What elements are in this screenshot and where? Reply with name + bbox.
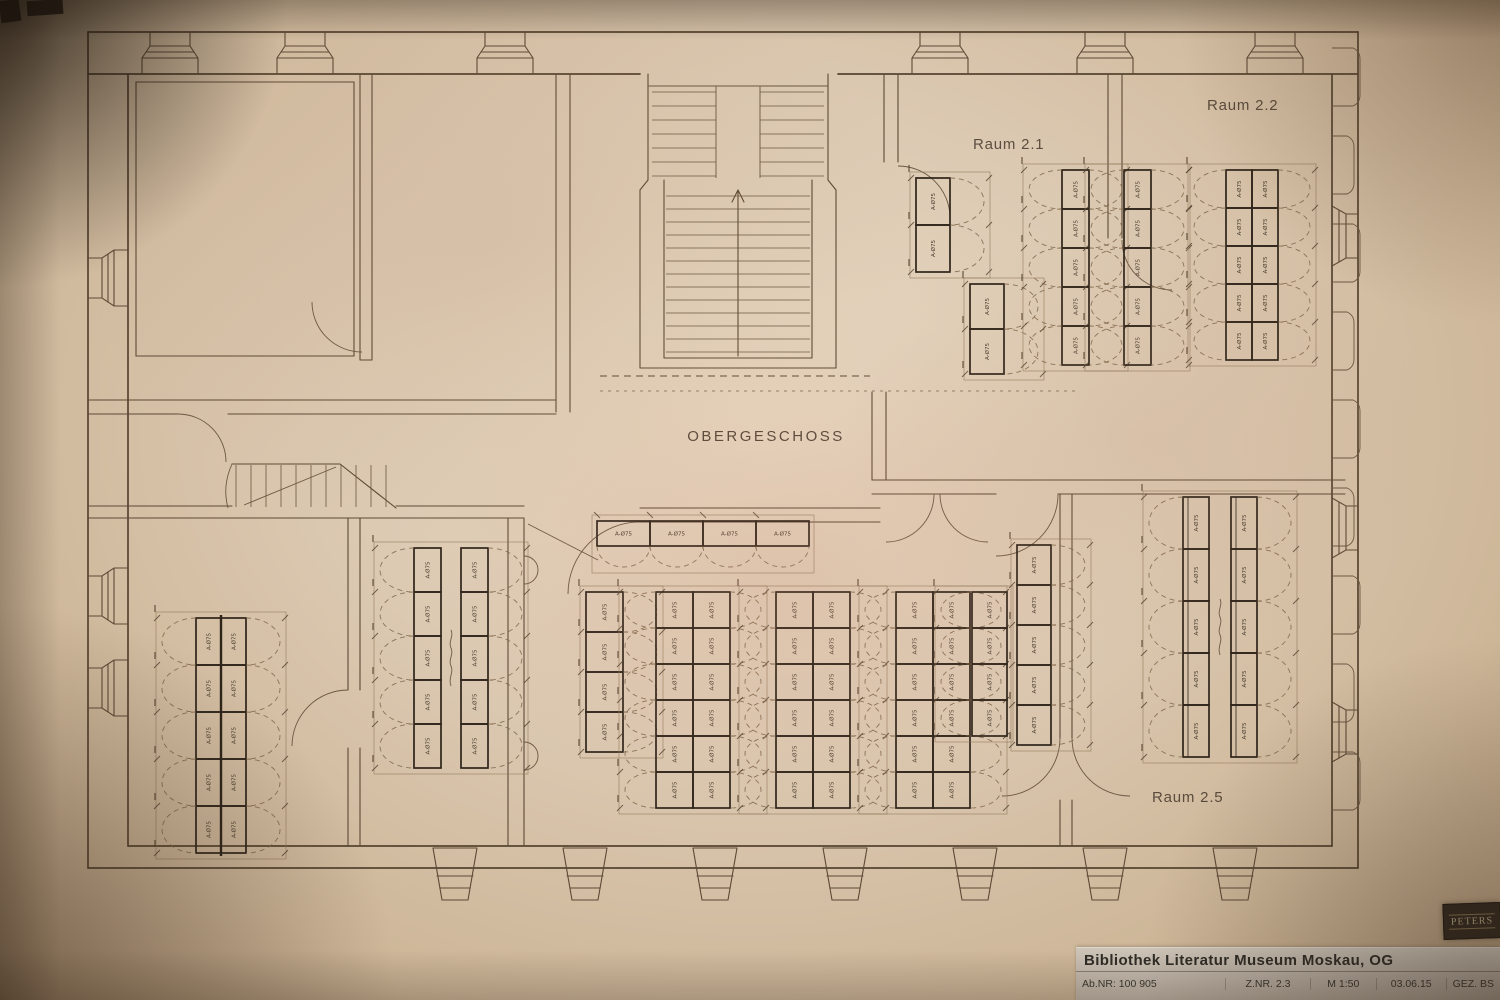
svg-text:A-Ø75: A-Ø75 xyxy=(1031,676,1038,693)
svg-text:A-Ø75: A-Ø75 xyxy=(709,601,716,618)
title-block-fields: Ab.NR: 100 905Z.NR. 2.3M 1:5003.06.15GEZ… xyxy=(1076,972,1500,996)
svg-text:A-Ø75: A-Ø75 xyxy=(721,531,738,538)
svg-text:A-Ø75: A-Ø75 xyxy=(949,601,956,618)
room-label-2-2: Raum 2.2 xyxy=(1207,97,1278,114)
svg-text:A-Ø75: A-Ø75 xyxy=(602,683,609,700)
svg-text:A-Ø75: A-Ø75 xyxy=(672,673,679,690)
svg-text:A-Ø75: A-Ø75 xyxy=(709,745,716,762)
svg-text:A-Ø75: A-Ø75 xyxy=(829,745,836,762)
svg-text:A-Ø75: A-Ø75 xyxy=(1031,556,1038,573)
outer-walls xyxy=(88,32,1358,868)
svg-text:A-Ø75: A-Ø75 xyxy=(1193,618,1200,635)
svg-text:A-Ø75: A-Ø75 xyxy=(1236,332,1243,349)
svg-text:A-Ø75: A-Ø75 xyxy=(1241,618,1248,635)
maker-stamp: PETERS xyxy=(1442,902,1500,940)
svg-text:A-Ø75: A-Ø75 xyxy=(206,774,213,791)
svg-text:A-Ø75: A-Ø75 xyxy=(472,737,479,754)
svg-text:A-Ø75: A-Ø75 xyxy=(425,561,432,578)
shelf-group-r21-c: A-Ø75A-Ø75A-Ø75A-Ø75A-Ø75 xyxy=(1021,157,1130,371)
shelf-group-hall-v6: A-Ø75A-Ø75A-Ø75A-Ø75A-Ø75 xyxy=(1009,532,1093,751)
title-block-field: Ab.NR: 100 905 xyxy=(1076,978,1225,990)
shelf-group-r21-a: A-Ø75A-Ø75 xyxy=(908,165,992,278)
svg-text:A-Ø75: A-Ø75 xyxy=(672,709,679,726)
svg-text:A-Ø75: A-Ø75 xyxy=(1241,514,1248,531)
room-label-2-5: Raum 2.5 xyxy=(1152,789,1223,806)
svg-text:A-Ø75: A-Ø75 xyxy=(949,781,956,798)
svg-text:A-Ø75: A-Ø75 xyxy=(1262,180,1269,197)
svg-text:A-Ø75: A-Ø75 xyxy=(1031,716,1038,733)
svg-text:A-Ø75: A-Ø75 xyxy=(829,709,836,726)
svg-text:A-Ø75: A-Ø75 xyxy=(1241,670,1248,687)
svg-text:A-Ø75: A-Ø75 xyxy=(1073,220,1080,237)
svg-text:A-Ø75: A-Ø75 xyxy=(1193,566,1200,583)
shelf-group-r22: A-Ø75A-Ø75A-Ø75A-Ø75A-Ø75A-Ø75A-Ø75A-Ø75… xyxy=(1186,157,1318,366)
svg-text:A-Ø75: A-Ø75 xyxy=(1262,256,1269,273)
svg-text:A-Ø75: A-Ø75 xyxy=(1236,256,1243,273)
svg-text:A-Ø75: A-Ø75 xyxy=(912,781,919,798)
svg-text:A-Ø75: A-Ø75 xyxy=(231,821,238,838)
floor-plan-drawing: A-Ø75A-Ø75A-Ø75A-Ø75A-Ø75A-Ø75A-Ø75A-Ø75… xyxy=(0,0,1500,1000)
svg-text:A-Ø75: A-Ø75 xyxy=(912,601,919,618)
svg-text:A-Ø75: A-Ø75 xyxy=(987,673,994,690)
svg-text:A-Ø75: A-Ø75 xyxy=(472,605,479,622)
svg-text:A-Ø75: A-Ø75 xyxy=(1236,218,1243,235)
svg-text:A-Ø75: A-Ø75 xyxy=(829,601,836,618)
svg-text:A-Ø75: A-Ø75 xyxy=(792,637,799,654)
svg-text:A-Ø75: A-Ø75 xyxy=(829,673,836,690)
svg-text:A-Ø75: A-Ø75 xyxy=(1073,298,1080,315)
title-block-field: M 1:50 xyxy=(1310,978,1376,990)
svg-text:A-Ø75: A-Ø75 xyxy=(615,531,632,538)
svg-text:A-Ø75: A-Ø75 xyxy=(987,601,994,618)
svg-text:A-Ø75: A-Ø75 xyxy=(206,633,213,650)
title-block: Bibliothek Literatur Museum Moskau, OG A… xyxy=(1076,947,1500,1000)
svg-text:A-Ø75: A-Ø75 xyxy=(912,673,919,690)
svg-text:A-Ø75: A-Ø75 xyxy=(1135,259,1142,276)
svg-text:A-Ø75: A-Ø75 xyxy=(792,709,799,726)
title-block-field: Z.NR. 2.3 xyxy=(1225,978,1309,990)
svg-text:A-Ø75: A-Ø75 xyxy=(672,601,679,618)
svg-text:A-Ø75: A-Ø75 xyxy=(1241,722,1248,739)
svg-text:A-Ø75: A-Ø75 xyxy=(1262,294,1269,311)
svg-text:A-Ø75: A-Ø75 xyxy=(1262,218,1269,235)
svg-text:A-Ø75: A-Ø75 xyxy=(672,637,679,654)
title-block-field: 03.06.15 xyxy=(1376,978,1446,990)
svg-text:A-Ø75: A-Ø75 xyxy=(709,637,716,654)
svg-text:A-Ø75: A-Ø75 xyxy=(672,781,679,798)
svg-text:A-Ø75: A-Ø75 xyxy=(1193,514,1200,531)
svg-text:A-Ø75: A-Ø75 xyxy=(792,781,799,798)
svg-text:A-Ø75: A-Ø75 xyxy=(602,643,609,660)
svg-text:A-Ø75: A-Ø75 xyxy=(231,774,238,791)
shelf-group-hall-v3: A-Ø75A-Ø75A-Ø75A-Ø75A-Ø75A-Ø75A-Ø75A-Ø75… xyxy=(737,579,889,814)
svg-text:A-Ø75: A-Ø75 xyxy=(829,637,836,654)
svg-text:A-Ø75: A-Ø75 xyxy=(1073,259,1080,276)
svg-text:A-Ø75: A-Ø75 xyxy=(206,727,213,744)
svg-text:A-Ø75: A-Ø75 xyxy=(1135,181,1142,198)
svg-text:A-Ø75: A-Ø75 xyxy=(602,603,609,620)
svg-text:A-Ø75: A-Ø75 xyxy=(792,745,799,762)
svg-text:A-Ø75: A-Ø75 xyxy=(672,745,679,762)
svg-text:A-Ø75: A-Ø75 xyxy=(1193,670,1200,687)
shelf-group-r21-b: A-Ø75A-Ø75 xyxy=(962,271,1046,380)
svg-text:A-Ø75: A-Ø75 xyxy=(987,637,994,654)
svg-text:A-Ø75: A-Ø75 xyxy=(425,649,432,666)
svg-text:A-Ø75: A-Ø75 xyxy=(472,561,479,578)
svg-text:A-Ø75: A-Ø75 xyxy=(709,709,716,726)
svg-text:A-Ø75: A-Ø75 xyxy=(792,601,799,618)
shelf-group-r25: A-Ø75A-Ø75A-Ø75A-Ø75A-Ø75A-Ø75A-Ø75A-Ø75… xyxy=(1141,484,1299,763)
svg-text:A-Ø75: A-Ø75 xyxy=(984,298,991,315)
svg-text:A-Ø75: A-Ø75 xyxy=(1031,636,1038,653)
interior-walls xyxy=(88,74,1345,846)
svg-text:A-Ø75: A-Ø75 xyxy=(1236,294,1243,311)
svg-text:A-Ø75: A-Ø75 xyxy=(425,605,432,622)
svg-text:A-Ø75: A-Ø75 xyxy=(425,693,432,710)
shelf-group-room-ml: A-Ø75A-Ø75A-Ø75A-Ø75A-Ø75A-Ø75A-Ø75A-Ø75… xyxy=(372,535,530,774)
shelf-group-hall-v2: A-Ø75A-Ø75A-Ø75A-Ø75A-Ø75A-Ø75A-Ø75A-Ø75… xyxy=(617,579,769,814)
svg-text:A-Ø75: A-Ø75 xyxy=(987,709,994,726)
room-label-2-1: Raum 2.1 xyxy=(973,136,1044,153)
svg-text:A-Ø75: A-Ø75 xyxy=(206,680,213,697)
svg-text:A-Ø75: A-Ø75 xyxy=(1135,337,1142,354)
svg-text:A-Ø75: A-Ø75 xyxy=(1135,220,1142,237)
svg-text:A-Ø75: A-Ø75 xyxy=(1241,566,1248,583)
svg-text:A-Ø75: A-Ø75 xyxy=(602,723,609,740)
svg-text:A-Ø75: A-Ø75 xyxy=(930,240,937,257)
blueprint-photo: A-Ø75A-Ø75A-Ø75A-Ø75A-Ø75A-Ø75A-Ø75A-Ø75… xyxy=(0,0,1500,1000)
svg-text:A-Ø75: A-Ø75 xyxy=(949,637,956,654)
svg-text:A-Ø75: A-Ø75 xyxy=(1073,337,1080,354)
svg-text:A-Ø75: A-Ø75 xyxy=(231,680,238,697)
svg-text:A-Ø75: A-Ø75 xyxy=(231,727,238,744)
svg-text:A-Ø75: A-Ø75 xyxy=(1262,332,1269,349)
shelf-group-hall-v4: A-Ø75A-Ø75A-Ø75A-Ø75A-Ø75A-Ø75A-Ø75A-Ø75… xyxy=(857,579,1009,814)
svg-text:A-Ø75: A-Ø75 xyxy=(1031,596,1038,613)
svg-text:A-Ø75: A-Ø75 xyxy=(949,709,956,726)
svg-text:A-Ø75: A-Ø75 xyxy=(949,673,956,690)
svg-text:A-Ø75: A-Ø75 xyxy=(1073,181,1080,198)
svg-text:A-Ø75: A-Ø75 xyxy=(774,531,791,538)
svg-text:A-Ø75: A-Ø75 xyxy=(912,709,919,726)
svg-text:A-Ø75: A-Ø75 xyxy=(472,649,479,666)
svg-text:A-Ø75: A-Ø75 xyxy=(231,633,238,650)
svg-text:A-Ø75: A-Ø75 xyxy=(912,637,919,654)
shelf-group-room-bl: A-Ø75A-Ø75A-Ø75A-Ø75A-Ø75A-Ø75A-Ø75A-Ø75… xyxy=(154,605,288,859)
svg-text:A-Ø75: A-Ø75 xyxy=(668,531,685,538)
shelf-group-r21-d: A-Ø75A-Ø75A-Ø75A-Ø75A-Ø75 xyxy=(1083,157,1192,371)
svg-text:A-Ø75: A-Ø75 xyxy=(709,781,716,798)
svg-text:A-Ø75: A-Ø75 xyxy=(829,781,836,798)
maker-stamp-text: PETERS xyxy=(1449,913,1496,930)
svg-text:A-Ø75: A-Ø75 xyxy=(206,821,213,838)
svg-text:A-Ø75: A-Ø75 xyxy=(472,693,479,710)
shelf-group-hall-top: A-Ø75A-Ø75A-Ø75A-Ø75 xyxy=(592,512,814,573)
svg-text:A-Ø75: A-Ø75 xyxy=(425,737,432,754)
svg-text:A-Ø75: A-Ø75 xyxy=(1193,722,1200,739)
svg-text:A-Ø75: A-Ø75 xyxy=(1236,180,1243,197)
svg-text:A-Ø75: A-Ø75 xyxy=(949,745,956,762)
svg-text:A-Ø75: A-Ø75 xyxy=(984,343,991,360)
svg-text:A-Ø75: A-Ø75 xyxy=(930,193,937,210)
svg-text:A-Ø75: A-Ø75 xyxy=(709,673,716,690)
title-block-field: GEZ. BS xyxy=(1446,978,1500,990)
drawing-title: Bibliothek Literatur Museum Moskau, OG xyxy=(1076,948,1500,972)
svg-text:A-Ø75: A-Ø75 xyxy=(792,673,799,690)
floor-label: OBERGESCHOSS xyxy=(687,428,845,445)
svg-text:A-Ø75: A-Ø75 xyxy=(1135,298,1142,315)
shelf-group-hall-v1: A-Ø75A-Ø75A-Ø75A-Ø75 xyxy=(578,579,665,758)
svg-text:A-Ø75: A-Ø75 xyxy=(912,745,919,762)
